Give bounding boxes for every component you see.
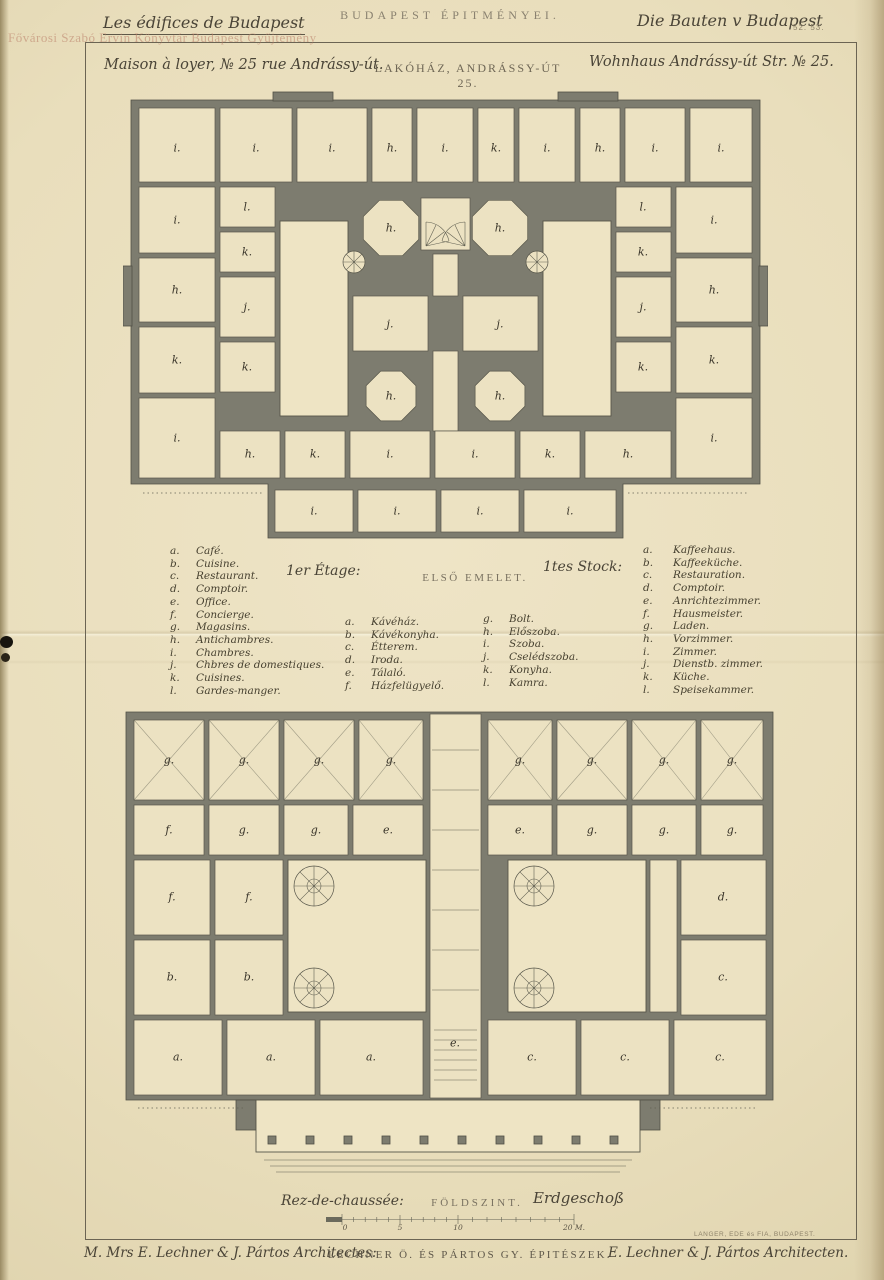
legend-label: Antichambres. [196, 634, 273, 647]
legend-german: a.Kaffeehaus.b.Kaffeeküche.c.Restauratio… [643, 544, 763, 696]
room-label-h: h. [172, 284, 183, 297]
legend-letter: h. [483, 626, 509, 639]
legend-label: Cselédszoba. [509, 651, 579, 664]
first-floor-caption-german: 1tes Stock: [543, 559, 622, 575]
legend-letter: l. [643, 684, 673, 697]
legend-label: Kávékonyha. [371, 629, 439, 642]
room-label-f: f. [165, 824, 172, 837]
legend-item: k.Küche. [643, 671, 763, 684]
first-floor-plan-drawing [123, 86, 768, 546]
legend-label: Chambres. [196, 647, 254, 660]
legend-label: Kaffeehaus. [673, 544, 735, 557]
room-label-a: a. [366, 1051, 376, 1064]
room-label-g: g. [239, 824, 250, 837]
room-label-g: g. [311, 824, 322, 837]
legend-letter: i. [643, 646, 673, 659]
legend-letter: e. [170, 596, 196, 609]
legend-label: Anrichtezimmer. [673, 595, 761, 608]
legend-letter: i. [170, 647, 196, 660]
legend-letter: f. [643, 608, 673, 621]
legend-letter: j. [643, 658, 673, 671]
room-label-i: i. [717, 142, 724, 155]
legend-item: l.Gardes-manger. [170, 685, 324, 698]
legend-label: Étterem. [371, 641, 418, 654]
legend-item: e.Office. [170, 596, 324, 609]
legend-letter: d. [345, 654, 371, 667]
legend-label: Kaffeeküche. [673, 557, 742, 570]
legend-item: i.Chambres. [170, 647, 324, 660]
printer-imprint: LANGER, EDE és FIA, BUDAPEST. [694, 1231, 815, 1238]
series-title-hungarian: BUDAPEST ÉPITMÉNYEI. [300, 8, 600, 23]
room-label-k: k. [638, 361, 648, 374]
legend-letter: f. [345, 680, 371, 693]
legend-label: Comptoir. [673, 582, 725, 595]
legend-label: Comptoir. [196, 583, 248, 596]
legend-label: Kávéház. [371, 616, 419, 629]
legend-item: c.Étterem. [345, 641, 444, 654]
legend-letter: g. [483, 613, 509, 626]
legend-item: g.Laden. [643, 620, 763, 633]
room-label-i: i. [252, 142, 259, 155]
room-label-i: i. [173, 432, 180, 445]
legend-item: d.Comptoir. [170, 583, 324, 596]
ground-floor-caption-german: Erdgeschoß [533, 1189, 624, 1207]
room-label-k: k. [242, 361, 252, 374]
legend-label: Restaurant. [196, 570, 258, 583]
legend-letter: l. [170, 685, 196, 698]
room-label-k: k. [310, 448, 320, 461]
room-label-i: i. [710, 214, 717, 227]
plate-page: Les édifices de Budapest Fővárosi Szabó … [0, 0, 884, 1280]
room-label-i: i. [476, 505, 483, 518]
legend-item: g.Magasins. [170, 621, 324, 634]
first-floor-caption-hungarian: ELSŐ EMELET. [405, 572, 545, 584]
legend-letter: b. [170, 558, 196, 571]
room-label-i: i. [393, 505, 400, 518]
legend-item: a.Café. [170, 545, 324, 558]
room-label-b: b. [167, 971, 178, 984]
room-label-i: i. [386, 448, 393, 461]
legend-letter: e. [345, 667, 371, 680]
building-title-french: Maison à loyer, № 25 rue Andrássy-út. [104, 57, 383, 73]
room-label-h: h. [245, 448, 256, 461]
room-label-f: f. [245, 891, 252, 904]
portico [138, 1100, 758, 1172]
page-right-edge [854, 0, 884, 1280]
room-label-b: b. [244, 971, 255, 984]
room-label-h: h. [495, 222, 506, 235]
room-label-k: k. [545, 448, 555, 461]
architect-credit-hungarian: LECHNER Ö. ÉS PÁRTOS GY. ÉPITÉSZEK. [328, 1249, 612, 1261]
legend-label: Hausmeister. [673, 608, 743, 621]
legend-label: Cuisines. [196, 672, 245, 685]
legend-label: Concierge. [196, 609, 254, 622]
ground-floor-caption-french: Rez-de-chaussée: [281, 1193, 404, 1209]
room-label-k: k. [491, 142, 501, 155]
room-label-l: l. [639, 201, 646, 214]
room-label-i: i. [173, 142, 180, 155]
legend-letter: k. [483, 664, 509, 677]
scale-bar: 0 5 10 20 M. [312, 1209, 602, 1237]
legend-item: k.Cuisines. [170, 672, 324, 685]
room-label-g: g. [239, 754, 250, 767]
legend-letter: l. [483, 677, 509, 690]
room-label-h: h. [386, 222, 397, 235]
scale-tick-5: 5 [398, 1223, 403, 1232]
legend-label: Laden. [673, 620, 709, 633]
room-label-k: k. [172, 354, 182, 367]
plate-number: 52. 53. [793, 23, 824, 32]
legend-letter: j. [483, 651, 509, 664]
legend-label: Küche. [673, 671, 710, 684]
room-label-a: a. [173, 1051, 183, 1064]
room-label-h: h. [495, 390, 506, 403]
legend-item: f.Házfelügyelő. [345, 680, 444, 693]
legend-letter: d. [643, 582, 673, 595]
room-label-i: i. [173, 214, 180, 227]
room-label-j: j. [497, 318, 504, 331]
scale-tick-10: 10 [453, 1223, 463, 1232]
room-label-e: e. [515, 824, 525, 837]
legend-letter: a. [170, 545, 196, 558]
room-label-g: g. [727, 824, 738, 837]
room-label-g: g. [587, 824, 598, 837]
first-floor-plan: i.i.i.h.i.k.i.h.i.i.i.h.k.i.i.h.k.i.l.k.… [123, 86, 768, 546]
room-label-f: f. [168, 891, 175, 904]
legend-item: c.Restauration. [643, 569, 763, 582]
legend-item: h.Vorzimmer. [643, 633, 763, 646]
legend-label: Office. [196, 596, 231, 609]
legend-letter: b. [345, 629, 371, 642]
room-label-h: h. [386, 390, 397, 403]
legend-letter: c. [643, 569, 673, 582]
room-label-i: i. [543, 142, 550, 155]
legend-item: i.Zimmer. [643, 646, 763, 659]
legend-label: Zimmer. [673, 646, 717, 659]
legend-letter: j. [170, 659, 196, 672]
legend-item: j.Chbres de domestiques. [170, 659, 324, 672]
room-label-h: h. [387, 142, 398, 155]
room-label-g: g. [727, 754, 738, 767]
scale-tick-0: 0 [343, 1223, 348, 1232]
room-label-i: i. [441, 142, 448, 155]
scale-tick-20: 20 M. [563, 1223, 585, 1232]
room-label-c: c. [718, 971, 728, 984]
room-label-h: h. [595, 142, 606, 155]
binding-mark [0, 636, 13, 648]
legend-item: j.Cselédszoba. [483, 651, 579, 664]
legend-hungarian-col2: g.Bolt.h.Előszoba.i.Szoba.j.Cselédszoba.… [483, 613, 579, 689]
legend-item: g.Bolt. [483, 613, 579, 626]
legend-label: Házfelügyelő. [371, 680, 444, 693]
legend-letter: g. [170, 621, 196, 634]
legend-letter: c. [345, 641, 371, 654]
legend-item: d.Iroda. [345, 654, 444, 667]
legend-label: Konyha. [509, 664, 552, 677]
legend-item: h.Előszoba. [483, 626, 579, 639]
legend-letter: k. [170, 672, 196, 685]
room-label-h: h. [709, 284, 720, 297]
architect-credit-german: E. Lechner & J. Pártos Architecten. [608, 1245, 848, 1261]
legend-letter: i. [483, 638, 509, 651]
legend-item: a.Kaffeehaus. [643, 544, 763, 557]
legend-label: Előszoba. [509, 626, 560, 639]
legend-item: b.Kaffeeküche. [643, 557, 763, 570]
room-label-c: c. [620, 1051, 630, 1064]
legend-hungarian-col1: a.Kávéház.b.Kávékonyha.c.Étterem.d.Iroda… [345, 616, 444, 692]
room-label-g: g. [659, 824, 670, 837]
room-label-j: j. [640, 301, 647, 314]
room-label-g: g. [386, 754, 397, 767]
legend-item: b.Kávékonyha. [345, 629, 444, 642]
legend-label: Bolt. [509, 613, 534, 626]
room-label-g: g. [164, 754, 175, 767]
room-label-g: g. [659, 754, 670, 767]
legend-label: Tálaló. [371, 667, 406, 680]
legend-item: e.Anrichtezimmer. [643, 595, 763, 608]
legend-label: Kamra. [509, 677, 548, 690]
room-label-j: j. [387, 318, 394, 331]
legend-label: Gardes-manger. [196, 685, 281, 698]
legend-item: a.Kávéház. [345, 616, 444, 629]
legend-item: l.Kamra. [483, 677, 579, 690]
legend-label: Café. [196, 545, 224, 558]
legend-label: Cuisine. [196, 558, 239, 571]
binding-mark [1, 653, 10, 662]
room-label-e: e. [450, 1037, 460, 1050]
legend-letter: f. [170, 609, 196, 622]
legend-letter: h. [643, 633, 673, 646]
room-label-i: i. [328, 142, 335, 155]
room-label-g: g. [515, 754, 526, 767]
legend-label: Iroda. [371, 654, 403, 667]
legend-letter: c. [170, 570, 196, 583]
room-label-e: e. [383, 824, 393, 837]
legend-item: e.Tálaló. [345, 667, 444, 680]
building-title-german: Wohnhaus Andrássy-út Str. № 25. [589, 54, 834, 70]
ground-floor-plan: g.g.g.g.g.g.g.g.f.g.g.e.e.g.g.g.f.b.f.b.… [118, 700, 788, 1190]
room-label-g: g. [314, 754, 325, 767]
room-label-i: i. [651, 142, 658, 155]
room-label-i: i. [710, 432, 717, 445]
legend-item: l.Speisekammer. [643, 684, 763, 697]
legend-letter: k. [643, 671, 673, 684]
legend-letter: e. [643, 595, 673, 608]
legend-item: f.Concierge. [170, 609, 324, 622]
room-label-c: c. [715, 1051, 725, 1064]
legend-item: j.Dienstb. zimmer. [643, 658, 763, 671]
room-label-a: a. [266, 1051, 276, 1064]
legend-label: Chbres de domestiques. [196, 659, 324, 672]
room-label-g: g. [587, 754, 598, 767]
legend-item: h.Antichambres. [170, 634, 324, 647]
legend-item: i.Szoba. [483, 638, 579, 651]
legend-label: Szoba. [509, 638, 544, 651]
room-label-l: l. [243, 201, 250, 214]
legend-item: d.Comptoir. [643, 582, 763, 595]
first-floor-caption-french: 1er Étage: [286, 563, 361, 579]
legend-letter: a. [345, 616, 371, 629]
room-label-k: k. [709, 354, 719, 367]
legend-label: Magasins. [196, 621, 250, 634]
legend-letter: a. [643, 544, 673, 557]
room-label-j: j. [244, 301, 251, 314]
legend-label: Dienstb. zimmer. [673, 658, 763, 671]
room-label-i: i. [471, 448, 478, 461]
room-label-h: h. [623, 448, 634, 461]
room-label-d: d. [718, 891, 729, 904]
legend-letter: h. [170, 634, 196, 647]
legend-label: Speisekammer. [673, 684, 754, 697]
legend-item: f.Hausmeister. [643, 608, 763, 621]
room-label-k: k. [638, 246, 648, 259]
legend-letter: b. [643, 557, 673, 570]
legend-label: Restauration. [673, 569, 745, 582]
ground-floor-caption-hungarian: FÖLDSZINT. [412, 1197, 542, 1209]
room-label-k: k. [242, 246, 252, 259]
room-label-i: i. [566, 505, 573, 518]
legend-letter: g. [643, 620, 673, 633]
room-label-i: i. [310, 505, 317, 518]
legend-label: Vorzimmer. [673, 633, 733, 646]
room-label-c: c. [527, 1051, 537, 1064]
legend-letter: d. [170, 583, 196, 596]
legend-item: k.Konyha. [483, 664, 579, 677]
ground-floor-plan-drawing [118, 700, 788, 1190]
library-watermark: Fővárosi Szabó Ervin Könyvtár Budapest G… [8, 30, 317, 46]
